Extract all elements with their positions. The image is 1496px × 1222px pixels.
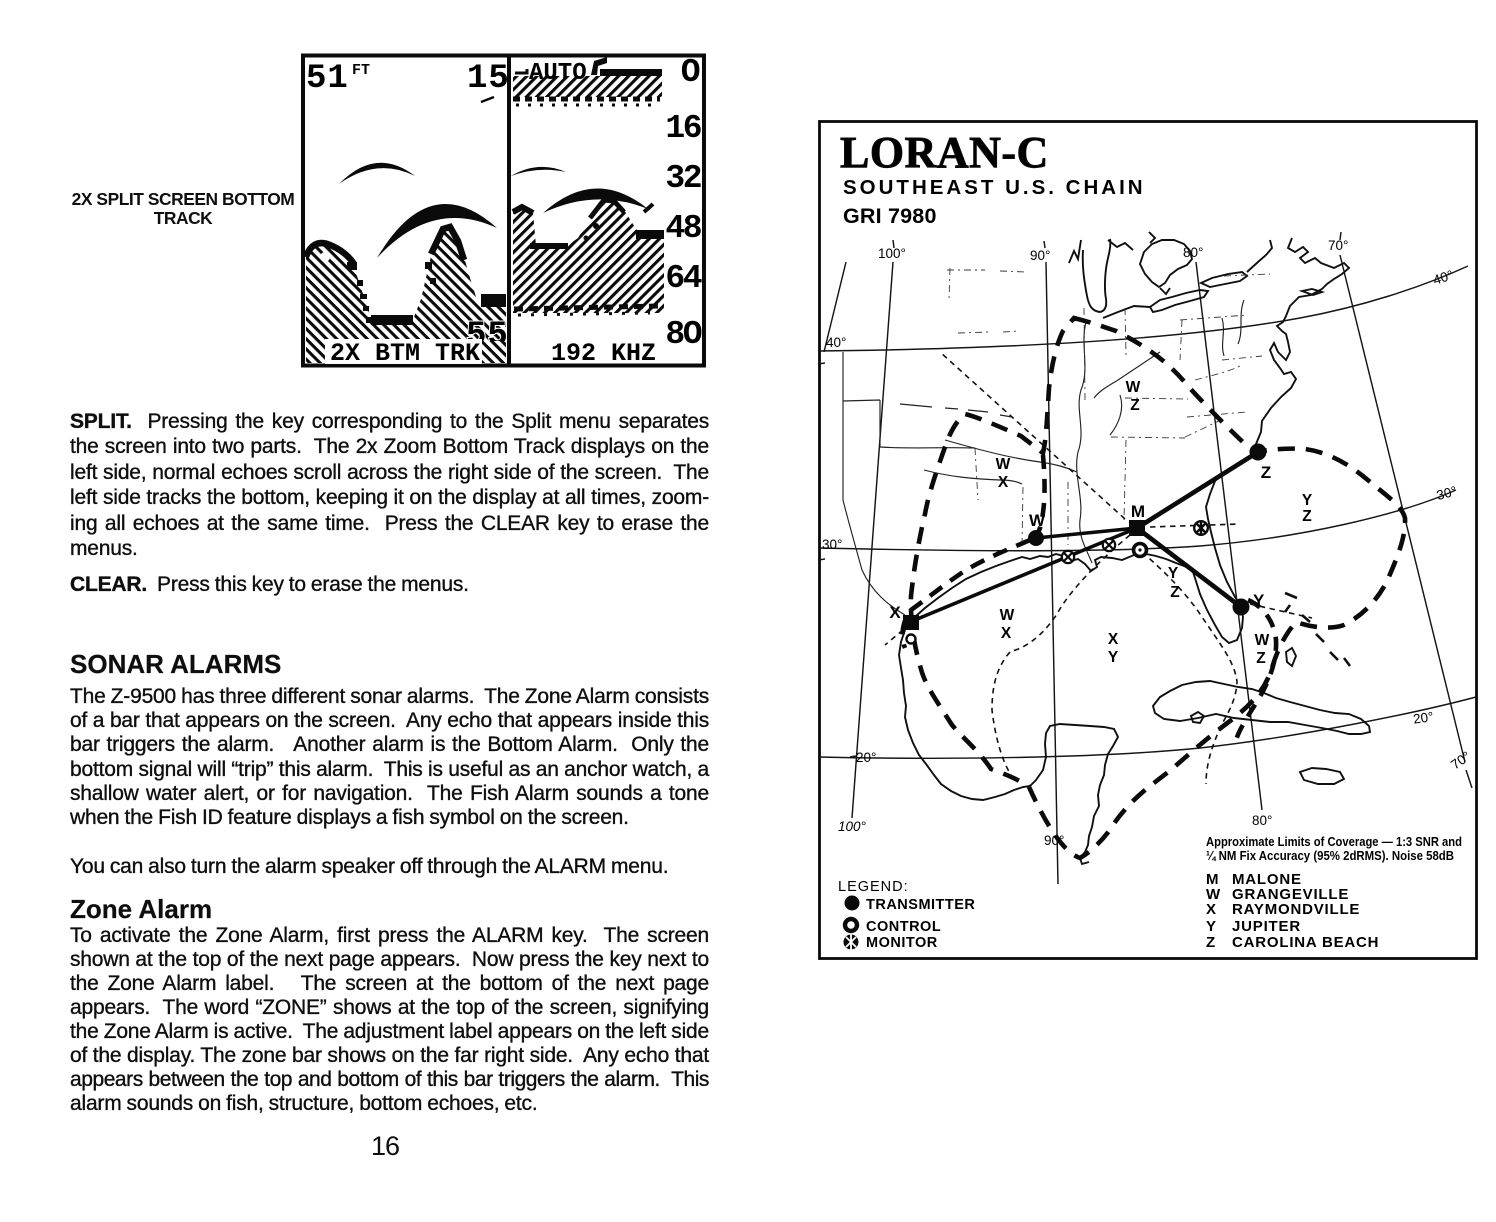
svg-text:80°: 80° (1252, 813, 1272, 828)
svg-text:¼ NM Fix Accuracy (95% 2dRMS).: ¼ NM Fix Accuracy (95% 2dRMS). Noise 58d… (1206, 848, 1454, 863)
svg-text:32: 32 (665, 160, 700, 197)
svg-text:W: W (1029, 511, 1046, 530)
svg-text:Z: Z (1130, 397, 1140, 414)
svg-text:100°: 100° (878, 246, 906, 261)
svg-text:O: O (681, 54, 700, 91)
svg-text:Z: Z (1261, 463, 1271, 482)
svg-text:70°: 70° (1328, 238, 1348, 253)
svg-text:51: 51 (306, 60, 349, 98)
svg-text:MONITOR: MONITOR (866, 935, 938, 951)
svg-text:Y: Y (1108, 649, 1119, 666)
svg-text:LEGEND:: LEGEND: (838, 879, 909, 895)
svg-text:64: 64 (665, 260, 701, 297)
svg-text:15: 15 (467, 60, 510, 98)
svg-text:Y: Y (1168, 565, 1179, 582)
svg-text:30°: 30° (822, 537, 842, 552)
svg-text:W: W (1000, 607, 1015, 624)
svg-text:Y: Y (1253, 591, 1265, 610)
svg-text:48: 48 (665, 210, 701, 247)
svg-text:X: X (1001, 625, 1012, 642)
svg-text:8O: 8O (665, 316, 701, 353)
svg-text:TRANSMITTER: TRANSMITTER (866, 897, 975, 913)
svg-text:40°: 40° (826, 335, 846, 350)
svg-text:90°: 90° (1044, 833, 1064, 848)
svg-text:X: X (889, 603, 901, 622)
svg-text:SOUTHEAST U.S. CHAIN: SOUTHEAST U.S. CHAIN (843, 176, 1146, 199)
svg-text:LORAN-C: LORAN-C (840, 128, 1049, 177)
svg-text:2X BTM TRK: 2X BTM TRK (330, 339, 480, 368)
svg-text:CAROLINA BEACH: CAROLINA BEACH (1232, 934, 1379, 951)
svg-text:JUPITER: JUPITER (1232, 918, 1301, 935)
svg-text:AUTO: AUTO (529, 60, 587, 87)
svg-text:192 KHZ: 192 KHZ (551, 339, 656, 368)
svg-text:Z: Z (1302, 508, 1312, 525)
svg-text:FT: FT (352, 62, 370, 79)
svg-text:Z: Z (1256, 650, 1266, 667)
svg-text:CONTROL: CONTROL (866, 919, 941, 935)
svg-text:Z: Z (1206, 934, 1216, 951)
svg-text:X: X (1206, 901, 1217, 918)
svg-text:W: W (1126, 379, 1141, 396)
svg-text:X: X (1108, 631, 1119, 648)
svg-text:Z: Z (1170, 584, 1180, 601)
svg-text:20°: 20° (856, 750, 876, 765)
svg-text:W: W (1255, 632, 1270, 649)
svg-text:Y: Y (1302, 492, 1313, 509)
svg-text:80°: 80° (1183, 245, 1203, 260)
svg-text:GRI 7980: GRI 7980 (843, 204, 937, 228)
svg-text:RAYMONDVILLE: RAYMONDVILLE (1232, 901, 1360, 918)
svg-text:16: 16 (665, 110, 700, 147)
svg-text:90°: 90° (1030, 248, 1050, 263)
svg-text:Y: Y (1206, 918, 1217, 935)
svg-text:20°: 20° (1412, 709, 1434, 727)
svg-text:X: X (998, 474, 1009, 491)
svg-text:M: M (1131, 502, 1145, 521)
svg-text:Approximate Limits of Coverage: Approximate Limits of Coverage — 1:3 SNR… (1206, 834, 1462, 849)
svg-text:W: W (996, 456, 1011, 473)
svg-text:100°: 100° (838, 819, 867, 834)
